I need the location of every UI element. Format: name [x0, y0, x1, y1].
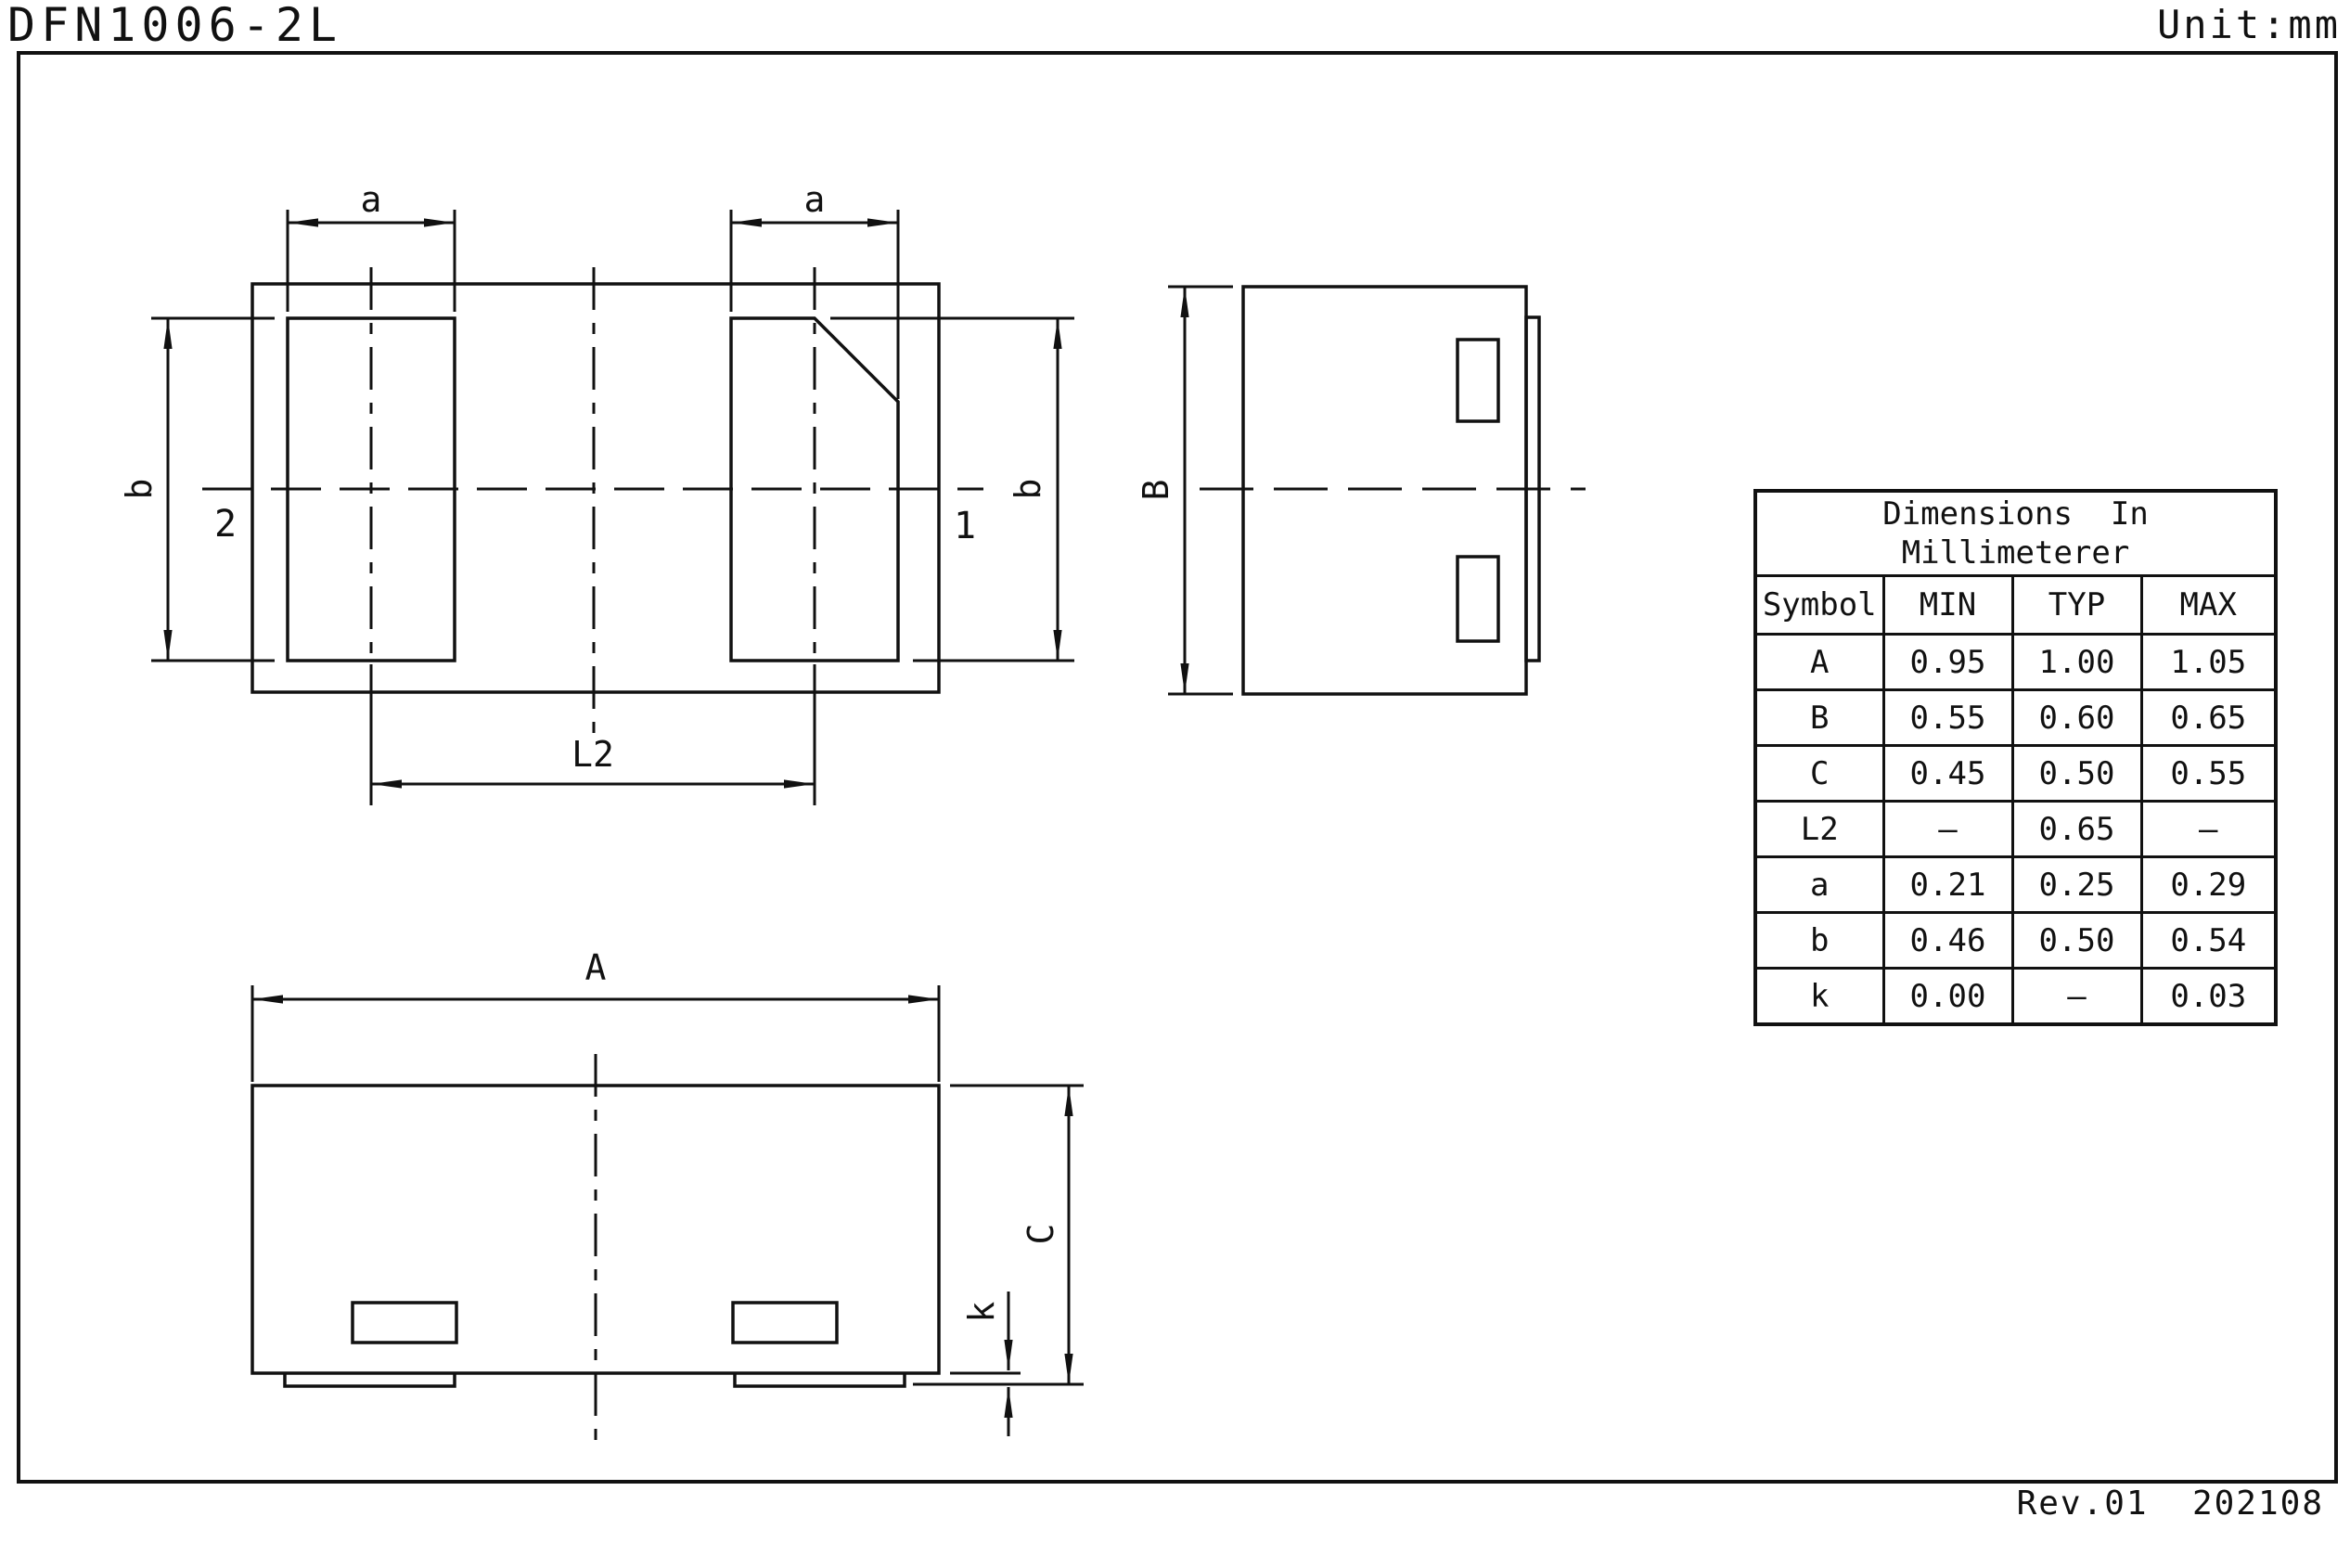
symbol-cell: C	[1755, 746, 1883, 802]
min-cell: 0.95	[1883, 635, 2012, 690]
lead-foot-right	[735, 1373, 905, 1386]
dim-k-label: k	[961, 1301, 1002, 1322]
typ-cell: –	[2012, 969, 2141, 1025]
table-header-row: Symbol MIN TYP MAX	[1755, 576, 2276, 635]
max-cell: 0.55	[2141, 746, 2276, 802]
symbol-cell: k	[1755, 969, 1883, 1025]
symbol-cell: B	[1755, 690, 1883, 746]
min-cell: 0.21	[1883, 857, 2012, 913]
dim-B-label: B	[1136, 480, 1176, 501]
dimensions-table: Dimensions In Millimeterer Symbol MIN TY…	[1753, 489, 2278, 1026]
dim-A-label: A	[585, 947, 607, 988]
typ-cell: 1.00	[2012, 635, 2141, 690]
table-title-cell: Dimensions In Millimeterer	[1755, 491, 2276, 576]
max-cell: –	[2141, 802, 2276, 857]
terminal-window-top	[1458, 340, 1498, 421]
drawing-sheet: DFN1006-2L Unit:mm a	[0, 0, 2350, 1568]
col-header-symbol: Symbol	[1755, 576, 1883, 635]
max-cell: 0.29	[2141, 857, 2276, 913]
min-cell: 0.55	[1883, 690, 2012, 746]
table-row-B: B 0.55 0.60 0.65	[1755, 690, 2276, 746]
symbol-cell: a	[1755, 857, 1883, 913]
table-row-A: A 0.95 1.00 1.05	[1755, 635, 2276, 690]
typ-cell: 0.50	[2012, 913, 2141, 969]
max-cell: 1.05	[2141, 635, 2276, 690]
typ-cell: 0.25	[2012, 857, 2141, 913]
table-title-line1: Dimensions In	[1757, 495, 2274, 534]
front-view: A C k	[252, 947, 1084, 1449]
max-cell: 0.54	[2141, 913, 2276, 969]
table-title-row: Dimensions In Millimeterer	[1755, 491, 2276, 576]
symbol-cell: L2	[1755, 802, 1883, 857]
table-row-L2: L2 – 0.65 –	[1755, 802, 2276, 857]
dim-a-left-label: a	[361, 179, 382, 220]
typ-cell: 0.60	[2012, 690, 2141, 746]
lead-foot-left	[285, 1373, 455, 1386]
max-cell: 0.65	[2141, 690, 2276, 746]
lead-window-right	[733, 1303, 837, 1343]
table-title-line2: Millimeterer	[1757, 533, 2274, 573]
side-view: B	[1136, 287, 1586, 694]
pin-2-number: 2	[214, 503, 237, 546]
dim-b-right-label: b	[1008, 479, 1048, 500]
symbol-cell: A	[1755, 635, 1883, 690]
min-cell: 0.00	[1883, 969, 2012, 1025]
table-row-a: a 0.21 0.25 0.29	[1755, 857, 2276, 913]
symbol-cell: b	[1755, 913, 1883, 969]
footer-revision: Rev.01 202108	[2017, 1484, 2324, 1523]
dim-C-label: C	[1021, 1224, 1061, 1245]
max-cell: 0.03	[2141, 969, 2276, 1025]
dim-L2-label: L2	[571, 734, 614, 775]
min-cell: 0.45	[1883, 746, 2012, 802]
typ-cell: 0.50	[2012, 746, 2141, 802]
min-cell: 0.46	[1883, 913, 2012, 969]
min-cell: –	[1883, 802, 2012, 857]
table-row-b: b 0.46 0.50 0.54	[1755, 913, 2276, 969]
dim-a-right-label: a	[804, 179, 826, 220]
terminal-window-bottom	[1458, 557, 1498, 641]
col-header-max: MAX	[2141, 576, 2276, 635]
table-row-C: C 0.45 0.50 0.55	[1755, 746, 2276, 802]
lead-window-left	[353, 1303, 456, 1343]
pin-1-number: 1	[954, 505, 976, 547]
col-header-typ: TYP	[2012, 576, 2141, 635]
col-header-min: MIN	[1883, 576, 2012, 635]
table-row-k: k 0.00 – 0.03	[1755, 969, 2276, 1025]
bottom-view: a a b b 2 1 L2	[119, 179, 1074, 805]
dim-b-left-label: b	[119, 479, 160, 500]
typ-cell: 0.65	[2012, 802, 2141, 857]
